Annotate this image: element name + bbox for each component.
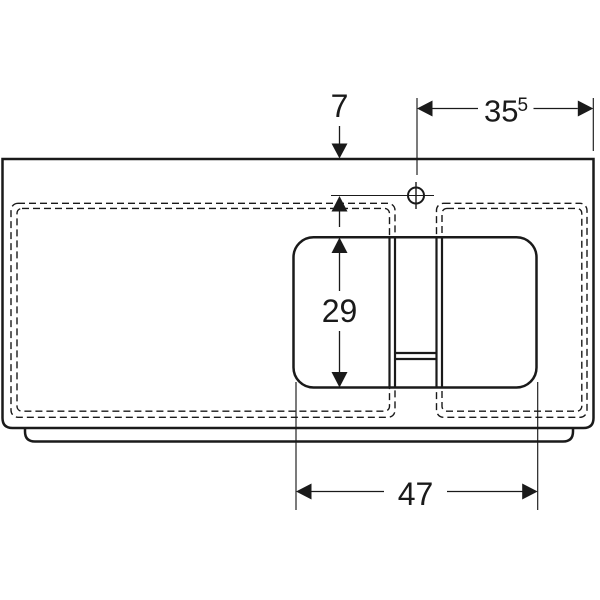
svg-text:35: 35	[484, 94, 518, 129]
svg-text:29: 29	[322, 293, 358, 329]
svg-text:5: 5	[518, 95, 529, 116]
svg-text:47: 47	[398, 476, 434, 512]
svg-text:7: 7	[331, 88, 349, 124]
